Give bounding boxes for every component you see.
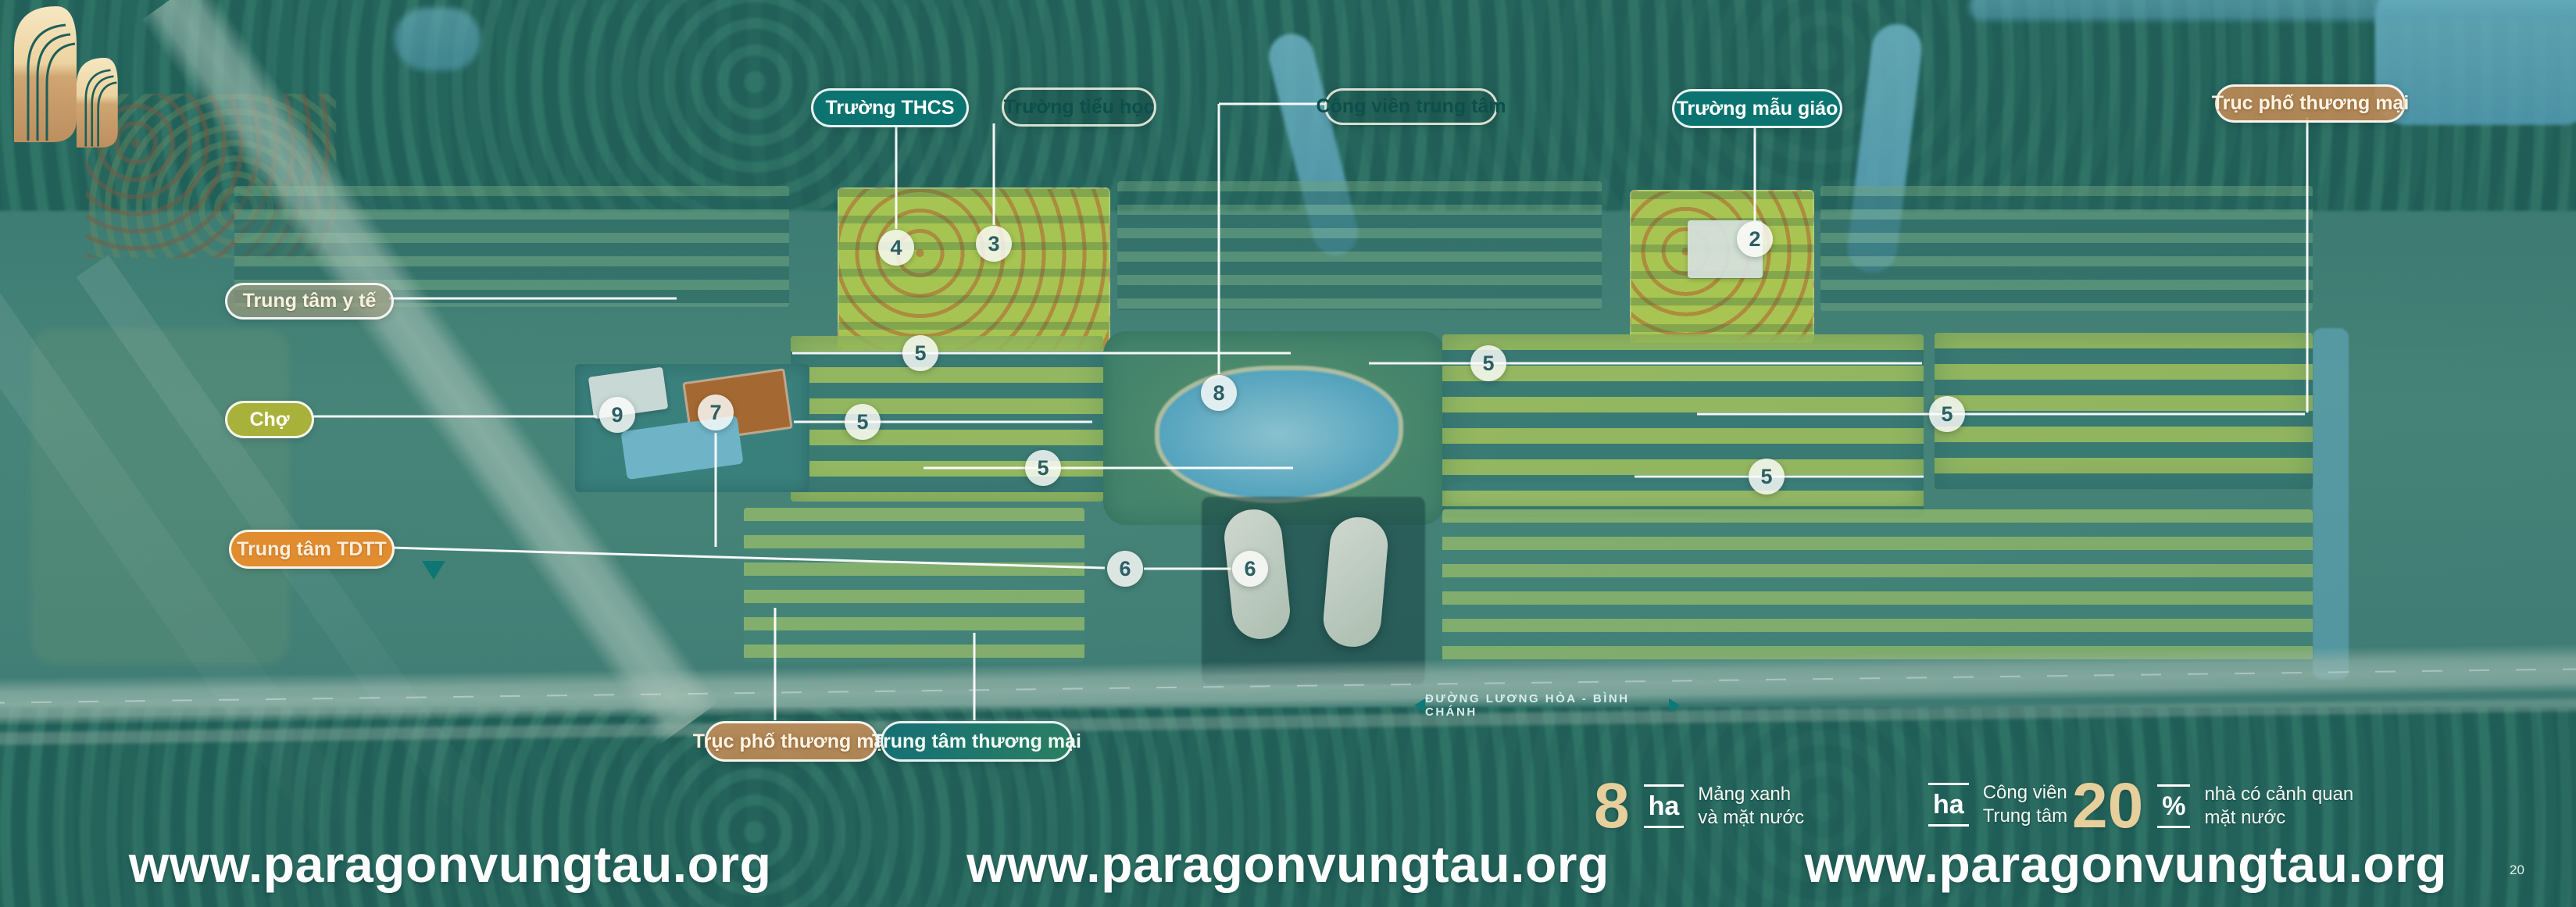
callout-truc-pho-thuong-mai-top[interactable]: Trục phố thương mại <box>2215 84 2406 123</box>
callout-truong-tieu-hoc[interactable]: Trường tiểu học <box>1002 87 1156 127</box>
stat-desc: Công viênTrung tâm <box>1983 781 2067 828</box>
stat-waterfront-homes: 20 % nhà có cảnh quanmặt nước <box>2072 777 2353 835</box>
stat-value: 20 <box>2072 777 2143 835</box>
stat-desc-line2: và mặt nước <box>1698 807 1804 828</box>
stat-desc-line1: Công viên <box>1983 782 2067 803</box>
callout-cho[interactable]: Chợ <box>225 401 314 438</box>
road-direction-left-icon <box>1414 698 1425 712</box>
stat-value: 8 <box>1594 777 1630 835</box>
watermark-url: www.paragonvungtau.org <box>966 834 1610 894</box>
paragon-logo <box>5 2 138 154</box>
stat-desc-line2: Trung tâm <box>1983 805 2067 827</box>
stat-unit: % <box>2157 784 2190 828</box>
callout-trung-tam-thuong-mai[interactable]: Trung tâm thương mại <box>881 721 1073 762</box>
stat-desc-line1: nhà có cảnh quan <box>2204 784 2353 805</box>
paragon-logo-graphic <box>5 2 138 150</box>
stat-unit: ha <box>1928 783 1969 827</box>
stat-desc: nhà có cảnh quanmặt nước <box>2204 783 2353 830</box>
watermark-url: www.paragonvungtau.org <box>1805 834 2448 894</box>
stat-green-water-area: 8 ha Mảng xanhvà mặt nước <box>1594 777 1804 835</box>
page-number: 20 <box>2510 862 2524 878</box>
stat-desc-line1: Mảng xanh <box>1698 784 1791 805</box>
road-direction-right-icon <box>1669 698 1680 712</box>
masterplan-stage: 43289766555555 Trường THCSTrường tiểu họ… <box>0 0 2576 907</box>
callout-trung-tam-y-te[interactable]: Trung tâm y tế <box>225 283 394 320</box>
callout-truong-mau-giao[interactable]: Trường mẫu giáo <box>1672 89 1842 128</box>
stat-desc-line2: mặt nước <box>2204 807 2285 828</box>
watermark-row: www.paragonvungtau.org www.paragonvungta… <box>0 834 2576 894</box>
callout-truc-pho-thuong-mai-bottom[interactable]: Trục phố thương mại <box>705 721 878 762</box>
watermark-url: www.paragonvungtau.org <box>129 834 772 894</box>
callout-truong-thcs[interactable]: Trường THCS <box>811 88 969 127</box>
road-label: ĐƯỜNG LƯƠNG HÒA - BÌNH CHÁNH <box>1414 692 1680 719</box>
road-name: ĐƯỜNG LƯƠNG HÒA - BÌNH CHÁNH <box>1425 692 1669 719</box>
stat-central-park: ha Công viênTrung tâm <box>1928 781 2067 828</box>
callout-trung-tam-tdtt[interactable]: Trung tâm TDTT <box>229 530 395 569</box>
callout-cong-vien-trung-tam[interactable]: Công viên trung tâm <box>1324 88 1498 125</box>
stat-desc: Mảng xanhvà mặt nước <box>1698 783 1804 830</box>
stat-unit: ha <box>1644 784 1685 828</box>
callout-labels: Trường THCSTrường tiểu họcCông viên trun… <box>0 0 2576 907</box>
